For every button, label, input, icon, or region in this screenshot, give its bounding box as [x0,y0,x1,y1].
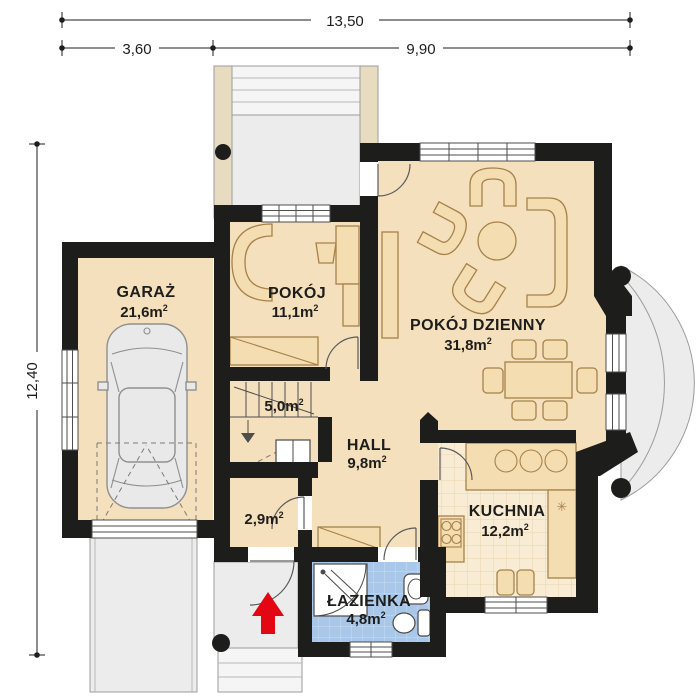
dim-segment-right: 9,90 [406,41,435,58]
terrace [214,66,378,218]
garage-door [92,520,197,538]
area-kuchnia: 12,2m2 [481,522,529,540]
coffee-table [478,222,516,260]
terrace-column-left [214,66,232,218]
dim-segment-left: 3,60 [122,41,151,58]
window-kitchen [485,597,547,613]
car [98,324,196,508]
car-mirror [186,382,196,390]
dining-chair [483,368,503,393]
floor-plan-page: ✳ [0,0,700,700]
bay-terrace-steps [621,266,694,500]
kitchen-sink [517,570,534,595]
label-lazienka: ŁAZIENKA [327,593,411,610]
kitchen-sink [497,570,514,595]
hall-furniture [318,527,380,549]
car-roof [119,388,175,462]
window-pokoj [262,205,330,222]
window-garage [62,350,78,450]
area-pokoj-dzienny: 31,8m2 [444,336,492,354]
toilet [393,613,415,633]
dining-chair [543,340,567,359]
area-hall: 9,8m2 [347,454,386,472]
pokoj-chair [316,243,336,263]
freezer-icon: ✳ [557,499,568,514]
area-lazienka: 4,8m2 [346,610,385,628]
label-kuchnia: KUCHNIA [469,503,546,520]
area-pokoj: 11,1m2 [272,303,319,321]
area-garaz: 21,6m2 [120,303,168,321]
label-garaz: GARAŻ [117,283,176,301]
window-bay-top [606,334,626,372]
bay-column-top [611,266,631,286]
area-garderoba: 2,9m2 [244,510,283,528]
label-hall: HALL [347,437,391,454]
dim-total-width: 13,50 [326,13,364,30]
dim-total-depth: 12,40 [24,362,41,400]
floor-plan-drawing: ✳ [0,0,700,700]
pokoj-desk-return [343,284,359,326]
dining-chair [512,401,536,420]
window-bathroom [350,642,392,657]
dining-chair [577,368,597,393]
pokoj-desk [336,226,359,284]
porch-steps [218,648,302,692]
porch-column-dot [212,634,230,652]
dining-chair [543,401,567,420]
label-pokoj-dzienny: POKÓJ DZIENNY [410,315,546,334]
car-mirror [98,382,108,390]
area-schody: 5,0m2 [264,397,303,415]
terrace-floor [232,115,360,218]
terrace-column-dot [215,144,231,160]
window-bay-bottom [606,394,626,430]
dining-chair [512,340,536,359]
window-living [420,143,535,161]
dining-table [505,362,572,398]
driveway [90,538,197,692]
label-pokoj: POKÓJ [268,283,326,302]
living-sideboard [382,232,398,338]
bay-column-bottom [611,478,631,498]
toilet-tank [418,610,430,636]
